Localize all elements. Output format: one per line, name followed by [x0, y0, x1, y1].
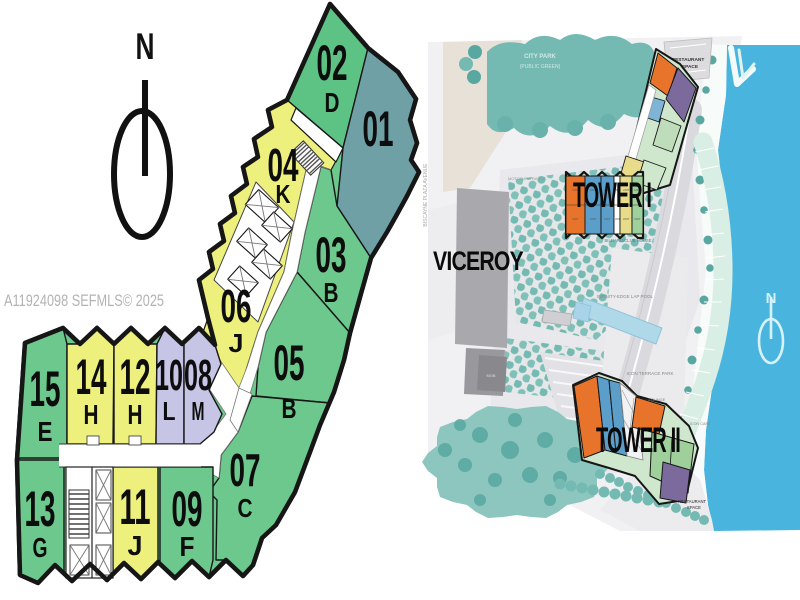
- svg-text:UNIT: UNIT: [614, 217, 621, 221]
- svg-text:10: 10: [155, 351, 183, 400]
- svg-text:D: D: [325, 87, 340, 118]
- svg-text:MOB: MOB: [486, 373, 495, 378]
- svg-text:E: E: [38, 416, 53, 447]
- svg-text:TOWER I: TOWER I: [573, 176, 651, 215]
- svg-text:05: 05: [274, 335, 305, 391]
- svg-text:N: N: [766, 290, 777, 307]
- svg-text:ICON TERRACE PARK: ICON TERRACE PARK: [626, 371, 673, 376]
- svg-text:VICEROY: VICEROY: [433, 246, 524, 276]
- svg-text:M: M: [192, 396, 205, 426]
- svg-text:A11924098 SEFMLS© 2025: A11924098 SEFMLS© 2025: [4, 291, 164, 310]
- svg-text:01: 01: [363, 101, 394, 157]
- svg-text:TOWER II: TOWER II: [596, 421, 680, 460]
- svg-text:12: 12: [120, 349, 151, 405]
- svg-text:09: 09: [172, 481, 203, 537]
- svg-text:BISCAYNE PLAZA AVENUE: BISCAYNE PLAZA AVENUE: [423, 163, 429, 227]
- svg-text:BILLIARD/CLUB HOUSE: BILLIARD/CLUB HOUSE: [604, 238, 651, 243]
- svg-text:F: F: [180, 531, 195, 562]
- svg-text:06: 06: [221, 280, 252, 332]
- svg-text:UNIT: UNIT: [623, 217, 630, 221]
- svg-text:G: G: [33, 532, 48, 563]
- svg-text:J: J: [229, 328, 244, 358]
- svg-text:CITY PARK: CITY PARK: [524, 54, 556, 60]
- svg-text:MOTOR ENTRANCE: MOTOR ENTRANCE: [508, 176, 546, 181]
- svg-text:INFINITY-EDGE LAP POOL: INFINITY-EDGE LAP POOL: [597, 294, 654, 299]
- svg-text:02: 02: [317, 35, 348, 91]
- svg-text:N: N: [136, 26, 155, 67]
- svg-text:UNIT: UNIT: [590, 217, 597, 221]
- svg-text:H: H: [84, 399, 99, 430]
- svg-text:SPACE: SPACE: [687, 505, 701, 510]
- svg-text:08: 08: [184, 351, 212, 400]
- svg-text:03: 03: [316, 227, 347, 283]
- svg-text:C: C: [238, 493, 253, 523]
- svg-text:UNIT: UNIT: [634, 217, 641, 221]
- svg-text:B: B: [324, 277, 339, 308]
- svg-text:UNIT: UNIT: [572, 217, 579, 221]
- svg-text:RESTAURANT: RESTAURANT: [678, 499, 707, 504]
- svg-text:UNIT: UNIT: [604, 217, 611, 221]
- svg-text:15: 15: [30, 361, 61, 417]
- svg-text:ICON CAFE: ICON CAFE: [690, 422, 711, 426]
- svg-text:14: 14: [76, 349, 107, 405]
- svg-text:L: L: [163, 396, 176, 426]
- svg-text:13: 13: [25, 481, 56, 537]
- svg-text:07: 07: [230, 444, 261, 496]
- svg-text:B: B: [282, 393, 297, 424]
- svg-text:J: J: [128, 530, 143, 561]
- svg-text:11: 11: [120, 479, 151, 535]
- svg-text:LOUNGE: LOUNGE: [649, 397, 666, 402]
- svg-text:(PUBLIC GREEN): (PUBLIC GREEN): [520, 64, 561, 70]
- svg-text:H: H: [128, 399, 143, 430]
- svg-text:K: K: [276, 179, 291, 209]
